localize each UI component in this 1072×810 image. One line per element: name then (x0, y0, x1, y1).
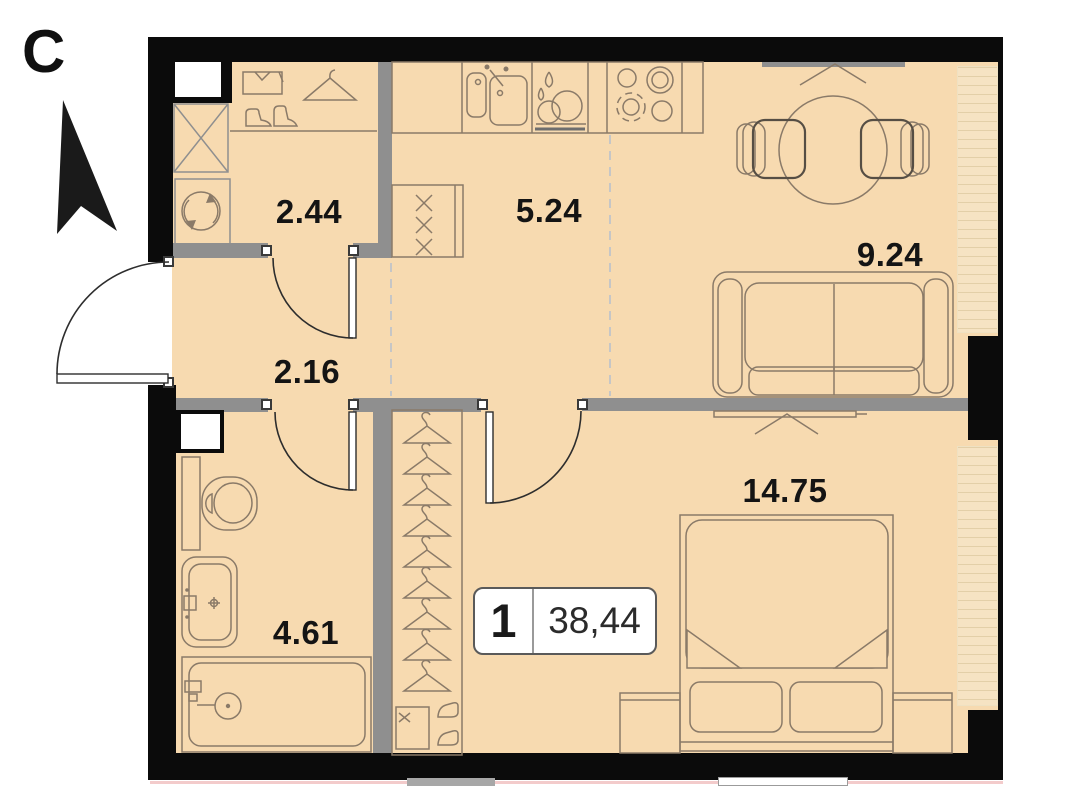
dish-rack-icon (536, 72, 586, 124)
plan-symbols (0, 0, 1072, 810)
room-label-entry-storage: 2.44 (276, 193, 342, 231)
bathtub-icon (182, 657, 371, 752)
shirt-icon (243, 72, 283, 94)
chair-left-icon (737, 120, 805, 178)
bed-icon (680, 515, 893, 751)
chair-right-icon (861, 120, 929, 178)
window-top-icon (800, 64, 866, 85)
entry-door (57, 262, 169, 383)
badge-total-area: 38,44 (534, 600, 655, 642)
fridge-icon (392, 185, 463, 257)
compass-north-label: С (22, 22, 65, 82)
wash-basin-icon (182, 557, 237, 647)
room-label-bedroom: 14.75 (742, 472, 827, 510)
washing-machine-icon (175, 179, 230, 245)
nightstand-right-icon (893, 693, 952, 753)
hanger-icon (304, 70, 356, 100)
nightstand-left-icon (620, 693, 680, 753)
apartment-badge: 1 38,44 (473, 587, 657, 655)
room-label-living: 9.24 (857, 236, 923, 274)
boots-icon (246, 106, 297, 126)
toilet-icon (182, 457, 257, 550)
vent-shaft-icon (174, 104, 228, 172)
window-internal-icon (714, 411, 867, 434)
storage-door (273, 258, 356, 338)
badge-rooms-count: 1 (475, 589, 534, 653)
room-label-kitchen: 5.24 (516, 192, 582, 230)
stove-icon (617, 67, 673, 121)
bathroom-door (275, 412, 356, 490)
sofa-icon (713, 272, 953, 397)
dining-table-icon (779, 96, 887, 204)
kitchen-sink-icon (467, 65, 527, 126)
floor-plan: С 2.44 5.24 9.24 2.16 4.61 14.75 1 38,44 (0, 0, 1072, 810)
room-label-bathroom: 4.61 (273, 614, 339, 652)
zone-dividers (391, 135, 610, 396)
north-arrow-icon (57, 100, 117, 234)
bedroom-door (486, 411, 581, 503)
closet-icon (392, 410, 462, 755)
room-label-hallway: 2.16 (274, 353, 340, 391)
